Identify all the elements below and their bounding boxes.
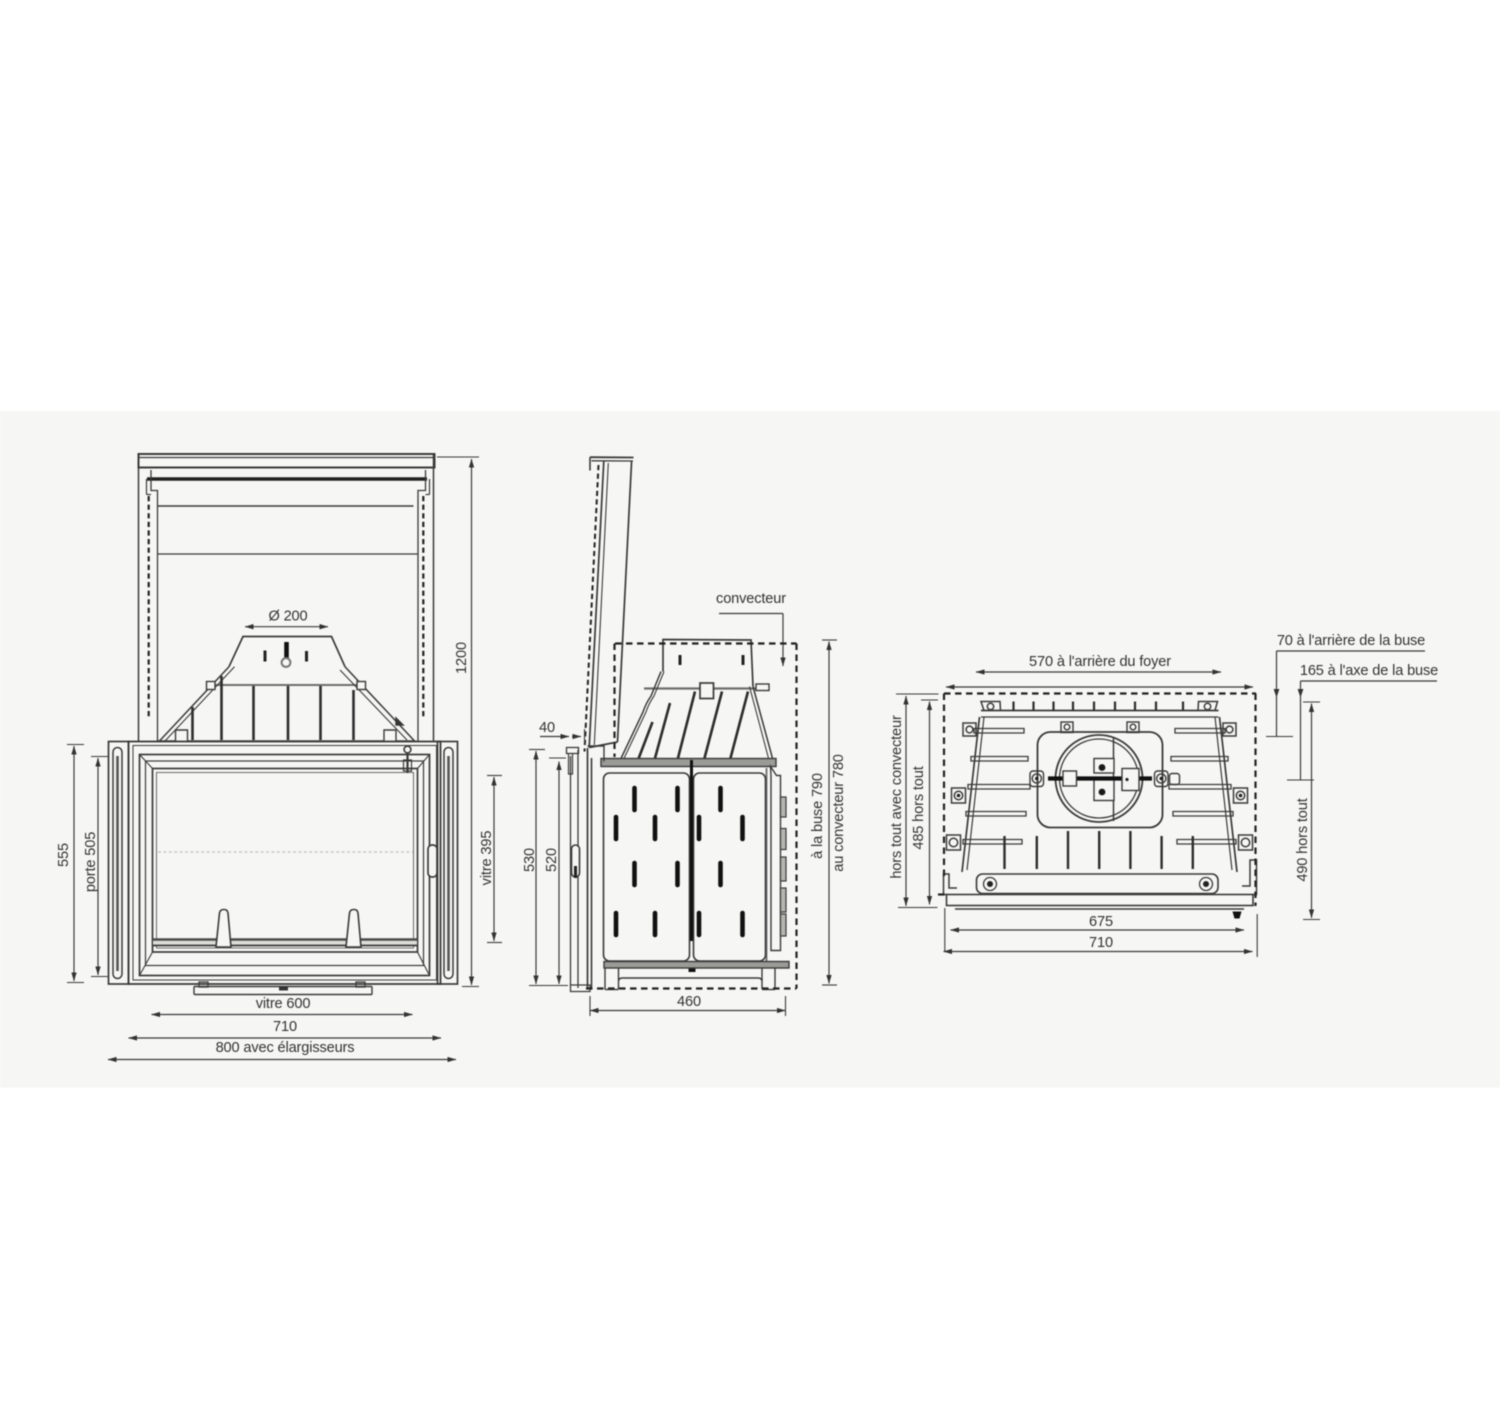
svg-text:490 hors tout: 490 hors tout: [1295, 798, 1311, 881]
svg-text:au convecteur 780: au convecteur 780: [831, 754, 847, 872]
svg-text:800 avec élargisseurs: 800 avec élargisseurs: [216, 1040, 355, 1056]
svg-text:710: 710: [273, 1019, 297, 1035]
svg-text:530: 530: [522, 848, 538, 872]
svg-text:convecteur: convecteur: [716, 591, 786, 607]
svg-text:555: 555: [56, 843, 72, 867]
svg-text:460: 460: [677, 994, 701, 1010]
svg-text:165 à l'axe de la buse: 165 à l'axe de la buse: [1300, 663, 1438, 679]
svg-text:570 à l'arrière du foyer: 570 à l'arrière du foyer: [1029, 654, 1171, 670]
svg-text:520: 520: [544, 848, 560, 872]
svg-text:à la buse 790: à la buse 790: [810, 773, 826, 859]
svg-text:70 à l'arrière de la buse: 70 à l'arrière de la buse: [1277, 633, 1425, 649]
svg-text:Ø 200: Ø 200: [268, 609, 307, 625]
svg-text:485 hors tout: 485 hors tout: [911, 766, 927, 849]
svg-text:1200: 1200: [454, 642, 470, 674]
svg-text:710: 710: [1089, 935, 1113, 951]
svg-text:porte 505: porte 505: [83, 832, 99, 892]
svg-text:40: 40: [539, 720, 555, 736]
svg-text:vitre 395: vitre 395: [479, 831, 495, 886]
svg-text:vitre 600: vitre 600: [256, 996, 311, 1012]
svg-text:675: 675: [1089, 914, 1113, 930]
svg-text:hors tout avec convecteur: hors tout avec convecteur: [889, 715, 905, 879]
